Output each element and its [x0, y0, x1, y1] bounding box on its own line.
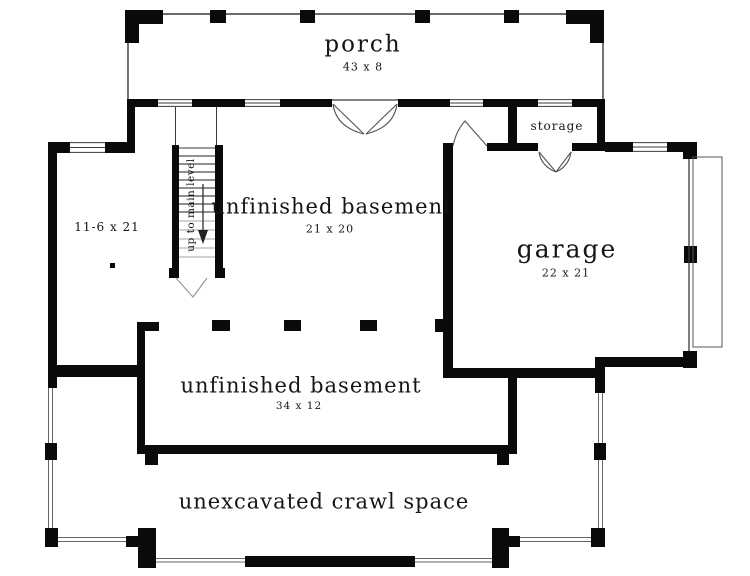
stair-break-pointer [176, 278, 207, 297]
basement-upper-label: unfinished basement [211, 197, 452, 218]
stair-direction-arrow [198, 184, 208, 244]
side-room-dims: 11-6 x 21 [74, 221, 140, 233]
storage-door-swing [539, 152, 571, 172]
garage-door-panel [693, 157, 722, 347]
porch-dims: 43 x 8 [343, 62, 383, 73]
basement-lower-dims: 34 x 12 [276, 401, 322, 412]
garage-entry-door-swing [453, 121, 487, 146]
side-room-walls [48, 142, 137, 388]
garage-label: garage [517, 237, 618, 262]
stairwell-lines [176, 107, 217, 148]
garage-dims: 22 x 21 [542, 268, 590, 279]
basement-upper-dims: 21 x 20 [306, 224, 354, 235]
storage-label: storage [531, 120, 584, 132]
crawl-space-outline [49, 388, 603, 562]
stair-direction-label: up to main level [186, 158, 197, 251]
porch-label: porch [324, 34, 401, 57]
crawl-space-label: unexcavated crawl space [179, 492, 470, 513]
french-door-swings [333, 104, 397, 134]
garage-window [633, 142, 667, 152]
basement-lower-label: unfinished basement [180, 376, 421, 397]
side-room-window [70, 142, 105, 153]
floor-plan: porch 43 x 8 storage unfinished basement… [0, 0, 750, 576]
